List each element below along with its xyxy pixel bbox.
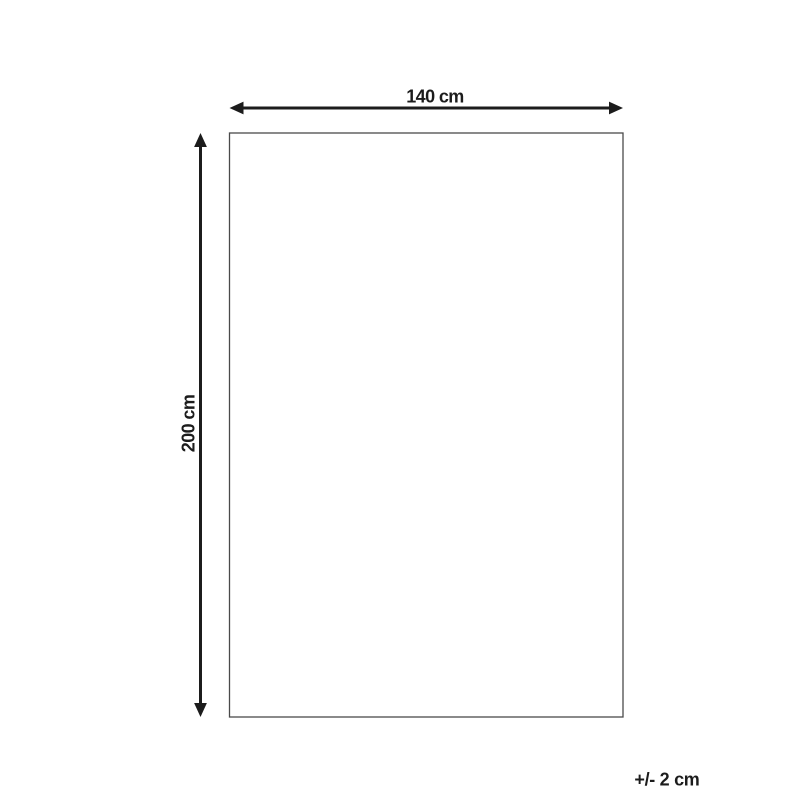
svg-text:+/- 2 cm: +/- 2 cm (634, 770, 699, 790)
svg-text:140 cm: 140 cm (406, 87, 463, 107)
svg-text:200 cm: 200 cm (179, 395, 199, 452)
